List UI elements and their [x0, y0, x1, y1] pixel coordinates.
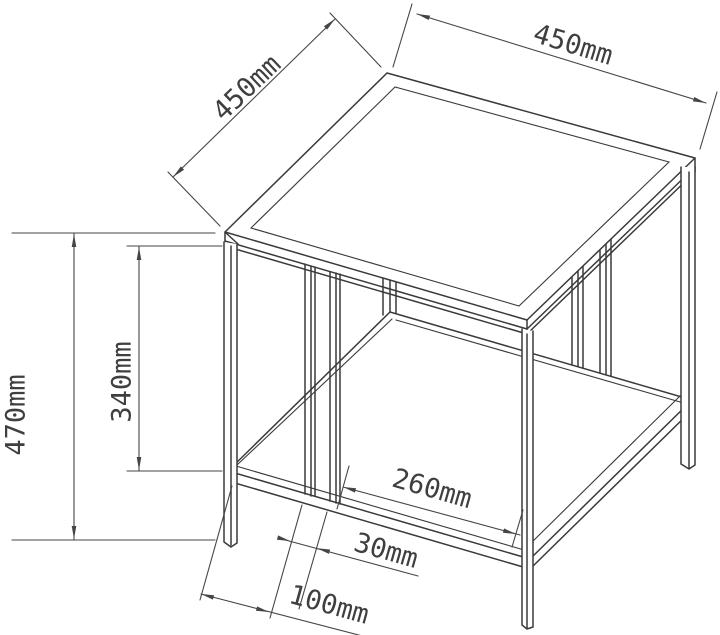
- dim-label-top-depth: 450mm: [207, 49, 287, 127]
- table-top: [225, 73, 695, 334]
- dim-label-overall-height: 470mm: [1, 374, 32, 455]
- right-leg: [681, 167, 695, 469]
- table-dimension-drawing: 450mm 450mm 470mm 340mm 260m: [0, 0, 720, 635]
- dim-label-top-to-shelf: 340mm: [107, 341, 138, 422]
- dimension-top-to-shelf: 340mm: [107, 246, 223, 471]
- dim-label-top-width: 450mm: [530, 18, 617, 71]
- technical-drawing-canvas: 450mm 450mm 470mm 340mm 260m: [0, 0, 720, 635]
- front-leg: [522, 329, 533, 629]
- lower-shelf: [228, 312, 692, 569]
- dim-label-leg-to-slat: 100mm: [286, 579, 373, 630]
- left-leg: [224, 242, 237, 547]
